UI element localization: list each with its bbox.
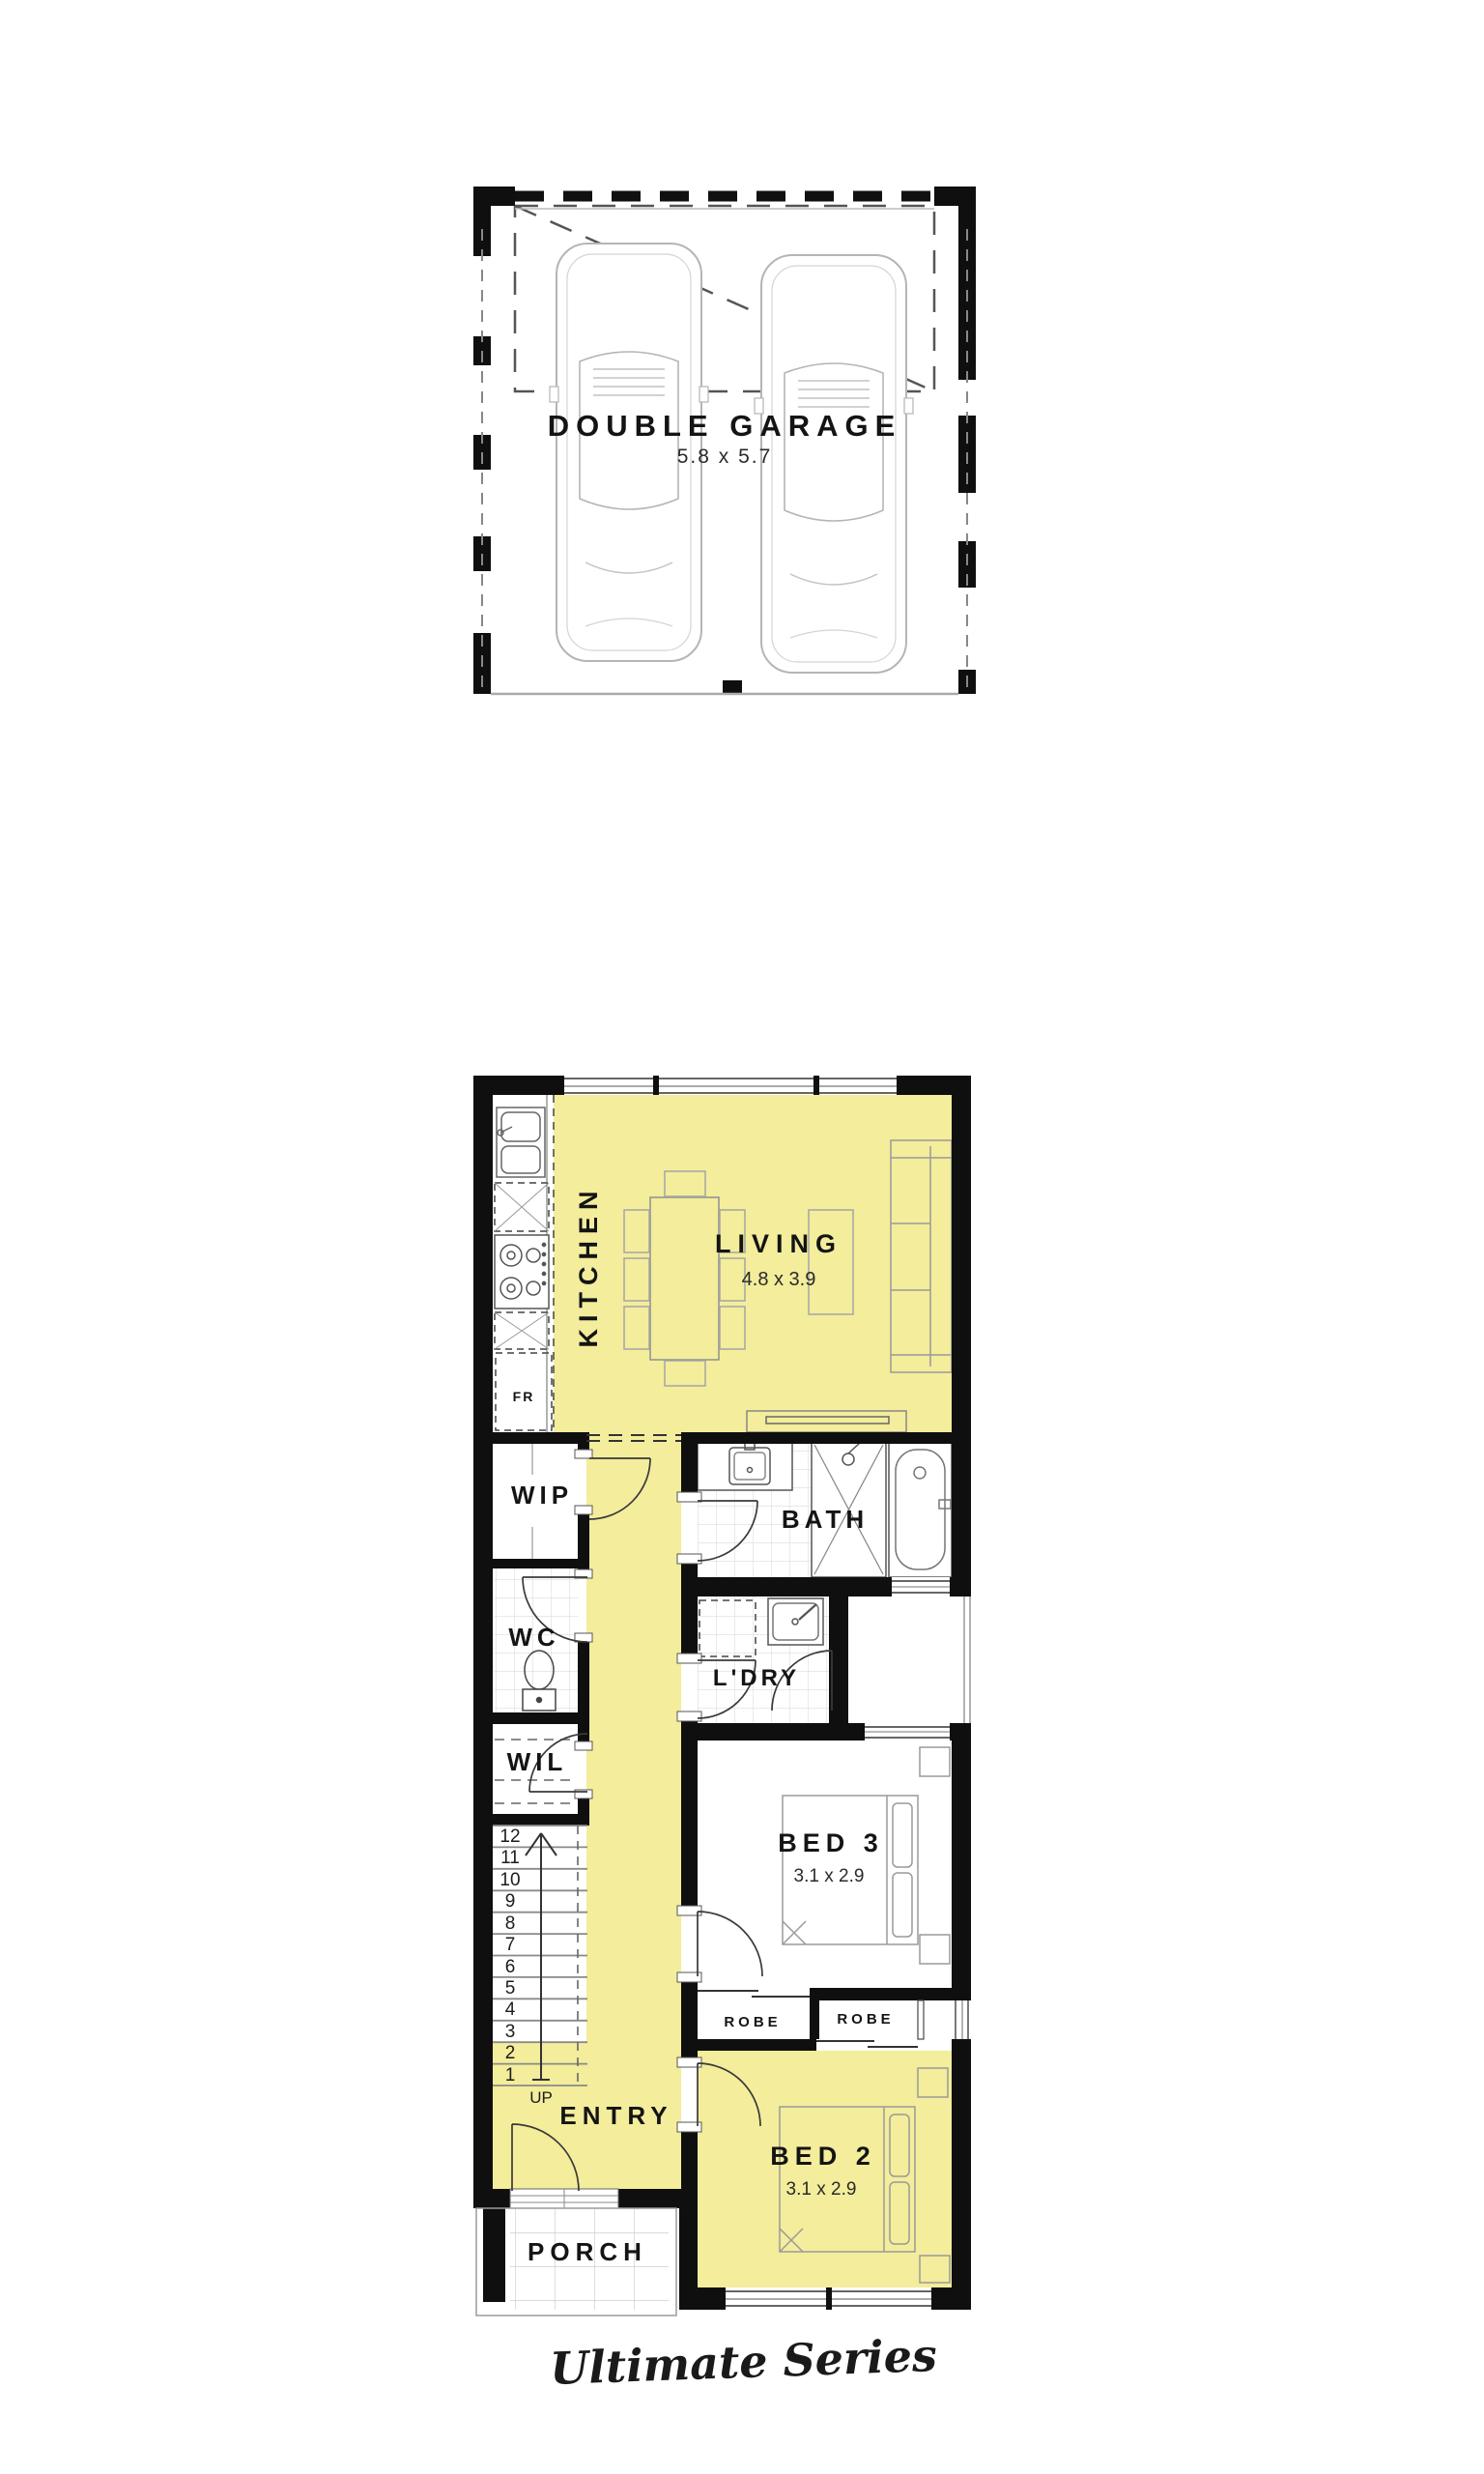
laundry-label: L'DRY xyxy=(713,1665,800,1691)
bed2-label: BED 2 xyxy=(770,2142,876,2171)
bath-label: BATH xyxy=(782,1505,869,1534)
kitchen-sink-icon xyxy=(497,1108,545,1177)
stair-step-11: 11 xyxy=(500,1848,520,1868)
robe-end-window xyxy=(952,2000,971,2039)
wip-label: WIP xyxy=(511,1481,573,1510)
stair-step-6: 6 xyxy=(505,1957,516,1977)
wil-label: WIL xyxy=(507,1747,568,1776)
wc-label: WC xyxy=(508,1623,559,1652)
stairs-up-label: UP xyxy=(529,2088,553,2107)
stair-step-8: 8 xyxy=(505,1913,516,1934)
living-dims: 4.8 x 3.9 xyxy=(742,1269,816,1290)
bed3-door xyxy=(698,1912,762,1976)
bed3-label: BED 3 xyxy=(778,1828,884,1857)
stair-step-5: 5 xyxy=(505,1978,516,1999)
vanity-icon xyxy=(698,1442,792,1490)
series-logo: Ultimate Series xyxy=(549,2329,937,2395)
stair-step-7: 7 xyxy=(505,1935,516,1955)
fridge-label: FR xyxy=(513,1389,535,1404)
stair-step-12: 12 xyxy=(499,1827,520,1847)
floor-plan-canvas: DOUBLE GARAGE 5.8 x 5.7 xyxy=(0,0,1484,2474)
robe-right-label: ROBE xyxy=(837,2011,894,2028)
entry-door-sill xyxy=(510,2189,618,2208)
living-window xyxy=(564,1076,897,1095)
robe-left-label: ROBE xyxy=(724,2014,781,2030)
stair-step-3: 3 xyxy=(505,2022,516,2042)
staircase: 12 11 10 9 8 7 6 5 4 3 2 1 UP xyxy=(493,1826,587,2107)
bed3-dims: 3.1 x 2.9 xyxy=(794,1866,865,1886)
stair-step-10: 10 xyxy=(499,1870,520,1890)
porch-label: PORCH xyxy=(528,2237,647,2266)
garage-room-label: DOUBLE GARAGE xyxy=(548,409,902,443)
kitchen-bench xyxy=(495,1095,554,1432)
garage-room-dims: 5.8 x 5.7 xyxy=(677,446,773,468)
ground-floor-plan: 12 11 10 9 8 7 6 5 4 3 2 1 UP KITCHEN LI… xyxy=(473,1076,971,2316)
entry-label: ENTRY xyxy=(559,2101,672,2130)
cooktop-icon xyxy=(495,1235,549,1309)
bathtub-icon xyxy=(889,1442,952,1577)
floorplan-page: DOUBLE GARAGE 5.8 x 5.7 xyxy=(0,0,1484,2474)
hallway-floor xyxy=(586,1432,681,2189)
bath-window xyxy=(892,1577,950,1597)
laundry-tub-icon xyxy=(768,1598,823,1645)
kitchen-label: KITCHEN xyxy=(574,1185,603,1348)
side-recess-boundary xyxy=(964,1597,970,1723)
living-kitchen-floor xyxy=(554,1095,952,1432)
garage-plan: DOUBLE GARAGE 5.8 x 5.7 xyxy=(473,187,976,694)
bed2-dims: 3.1 x 2.9 xyxy=(786,2179,857,2200)
car-top-view-right xyxy=(755,255,913,673)
stair-step-9: 9 xyxy=(505,1891,516,1912)
bed2-window xyxy=(726,2287,931,2310)
stair-step-1: 1 xyxy=(505,2065,516,2086)
stair-step-4: 4 xyxy=(505,1999,516,2020)
living-label: LIVING xyxy=(715,1229,842,1258)
stair-step-2: 2 xyxy=(505,2043,516,2063)
bed3-window xyxy=(865,1723,950,1740)
